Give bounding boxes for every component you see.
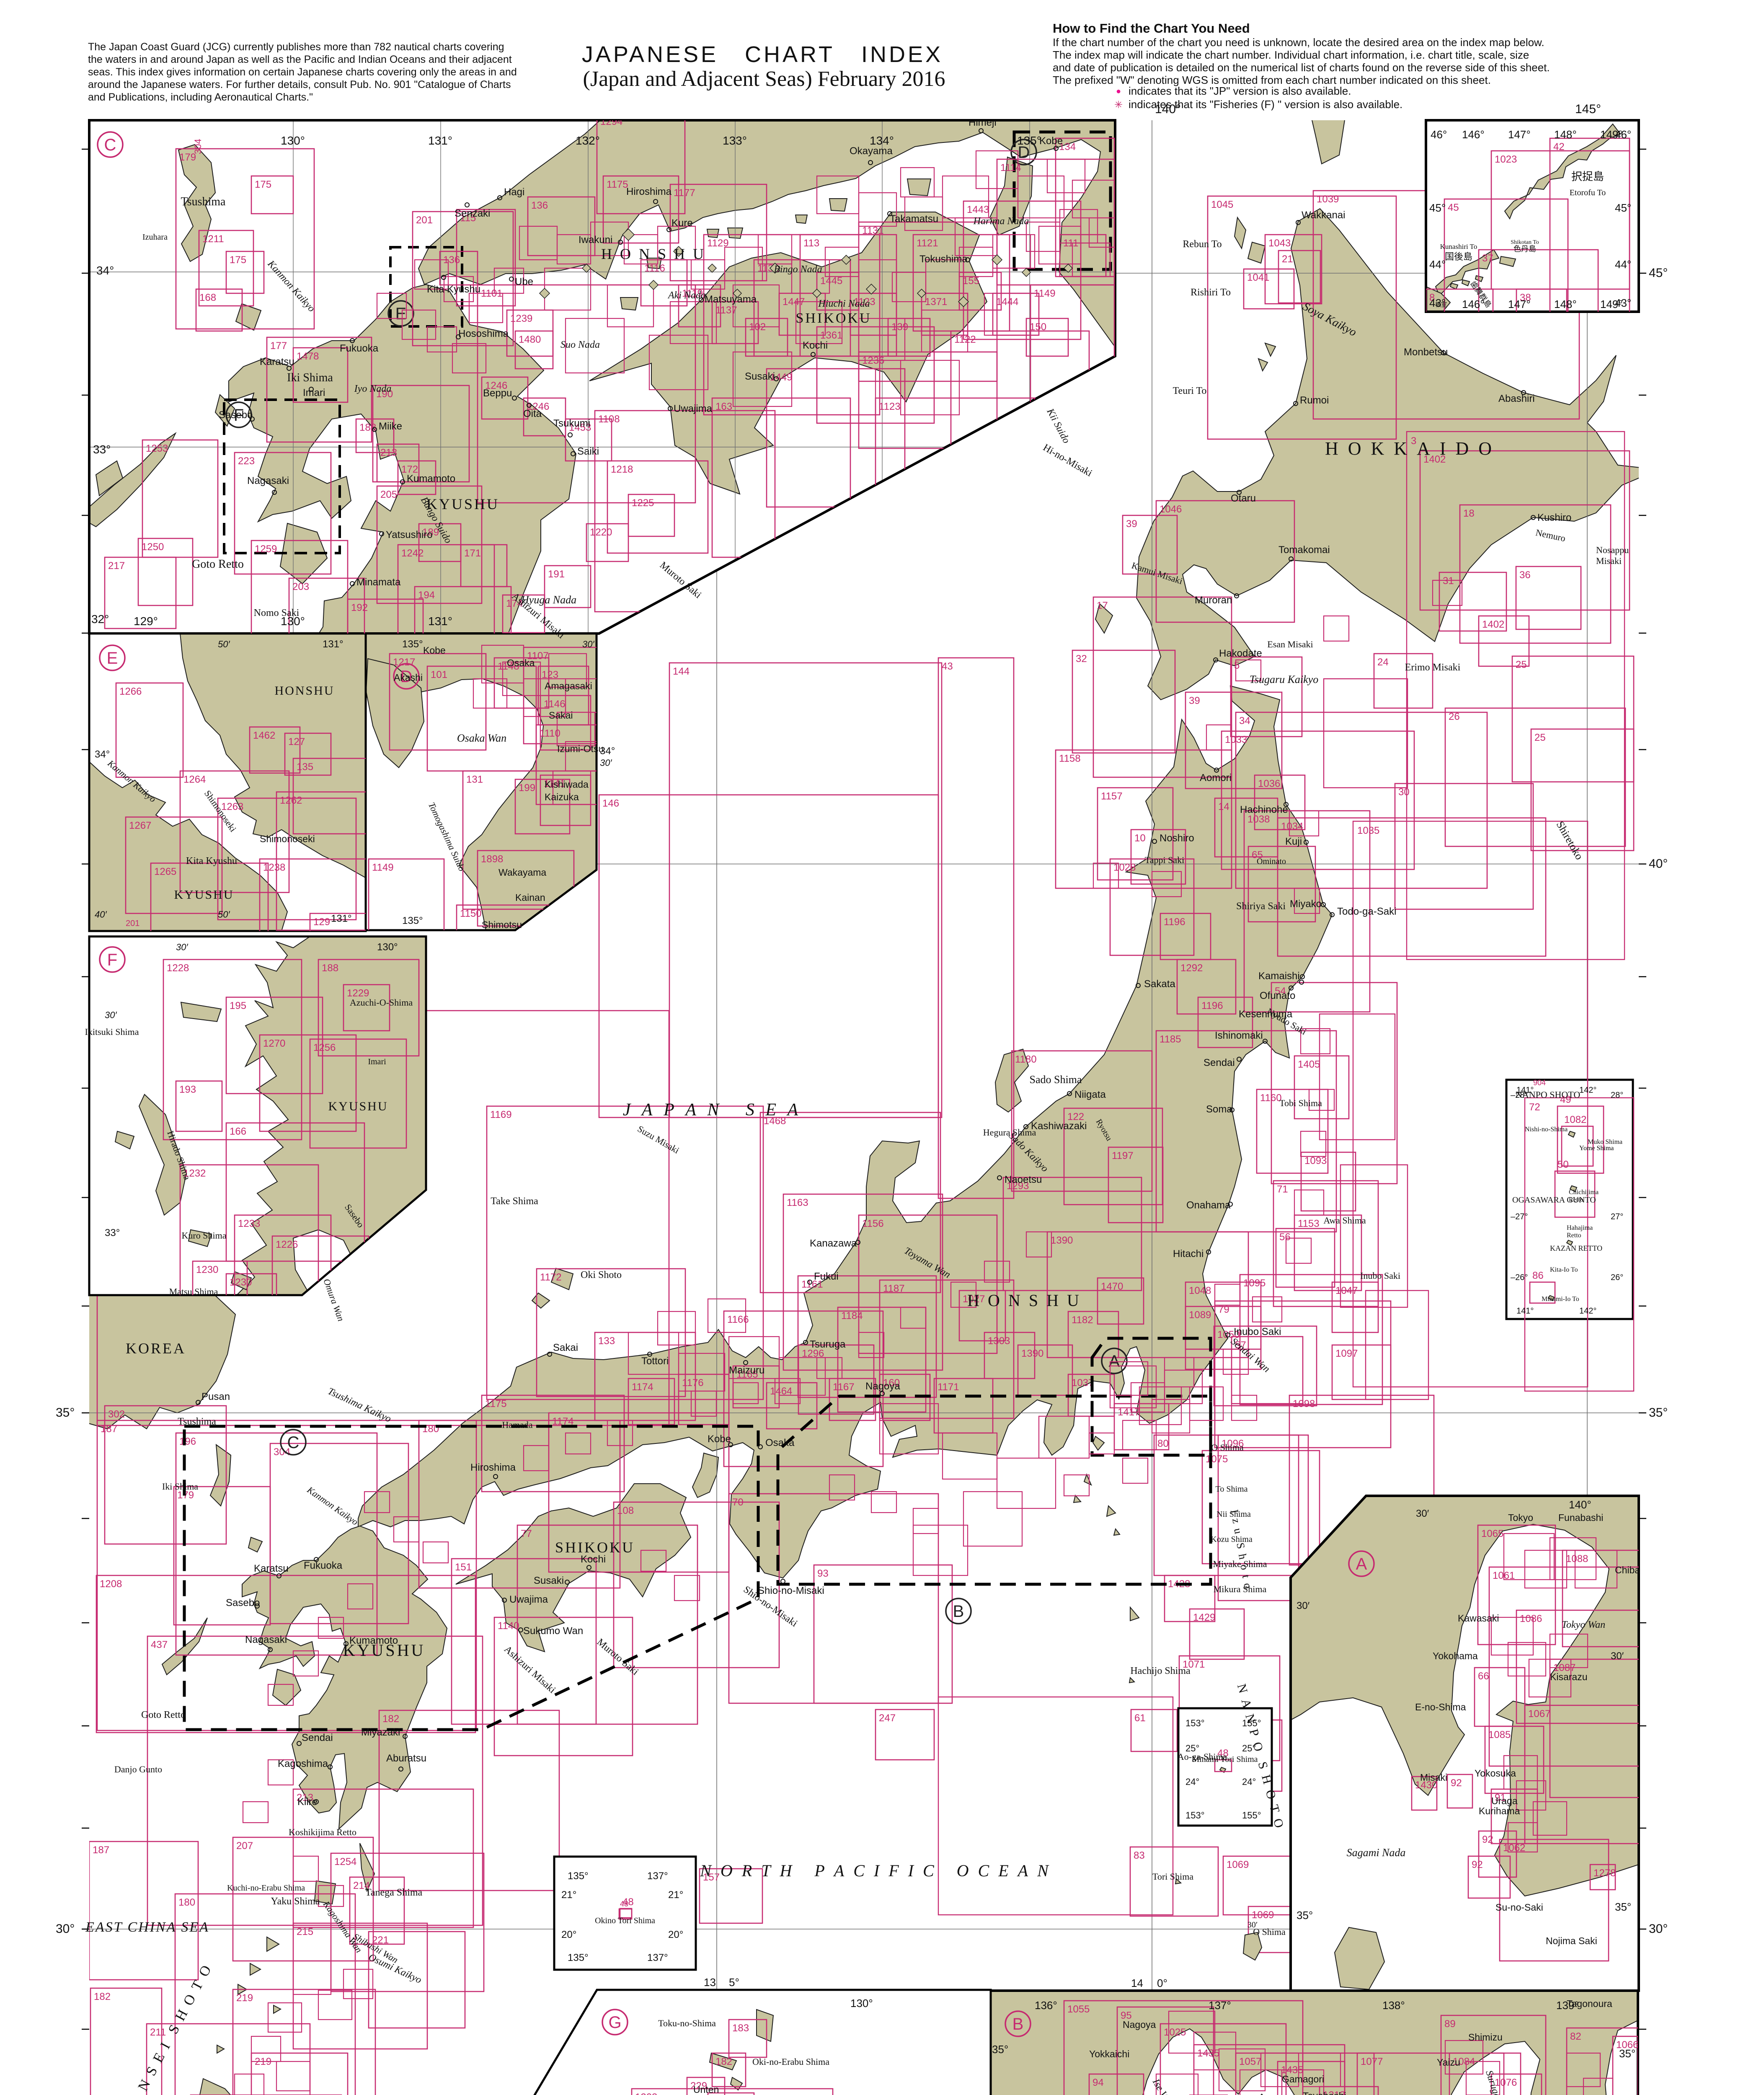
- svg-text:–26°: –26°: [1511, 1273, 1528, 1282]
- svg-text:Sakata: Sakata: [1144, 978, 1175, 990]
- svg-text:1177: 1177: [674, 187, 695, 199]
- svg-text:1158: 1158: [1059, 753, 1081, 764]
- svg-text:Kita Kyushu: Kita Kyushu: [427, 284, 480, 295]
- svg-text:1197: 1197: [1112, 1150, 1134, 1161]
- svg-text:1264: 1264: [183, 774, 206, 785]
- svg-text:JAPANESE CHART INDEX: JAPANESE CHART INDEX: [582, 42, 943, 67]
- svg-text:30°: 30°: [1649, 1922, 1668, 1936]
- svg-text:Ominato: Ominato: [1257, 857, 1286, 866]
- svg-text:Rishiri To: Rishiri To: [1191, 287, 1231, 298]
- svg-text:Hiroshima: Hiroshima: [470, 1462, 516, 1473]
- svg-text:24°: 24°: [1185, 1777, 1199, 1787]
- svg-text:1160: 1160: [1260, 1092, 1282, 1104]
- svg-text:Kumamoto: Kumamoto: [349, 1635, 398, 1646]
- svg-text:KAZAN RETTO: KAZAN RETTO: [1550, 1244, 1602, 1252]
- svg-text:24°: 24°: [1242, 1777, 1256, 1787]
- svg-text:1250: 1250: [142, 541, 164, 553]
- svg-text:34°: 34°: [95, 749, 110, 760]
- svg-text:1239: 1239: [510, 313, 532, 324]
- svg-text:1262: 1262: [280, 795, 302, 806]
- svg-text:66: 66: [1478, 1671, 1489, 1682]
- svg-text:Noshiro: Noshiro: [1160, 833, 1194, 844]
- svg-text:Matsu Shima: Matsu Shima: [169, 1286, 218, 1297]
- svg-text:Yokohama: Yokohama: [1433, 1650, 1478, 1661]
- svg-text:Wakkanai: Wakkanai: [1302, 209, 1345, 221]
- svg-text:20°: 20°: [668, 1929, 683, 1940]
- svg-text:1402: 1402: [1482, 619, 1504, 630]
- svg-text:around the Japanese waters. F: around the Japanese waters. For further …: [88, 79, 511, 91]
- svg-text:1038: 1038: [1247, 814, 1270, 825]
- svg-text:H O N S H U: H O N S H U: [967, 1291, 1081, 1310]
- svg-text:Imari: Imari: [368, 1057, 386, 1066]
- svg-text:1037: 1037: [1072, 1377, 1094, 1389]
- svg-text:129°: 129°: [134, 615, 158, 628]
- svg-text:25°: 25°: [1185, 1743, 1199, 1754]
- svg-text:147°: 147°: [1508, 128, 1531, 141]
- svg-text:Soma: Soma: [1206, 1104, 1232, 1115]
- svg-text:Uwajima: Uwajima: [674, 403, 713, 414]
- svg-text:Hamada: Hamada: [502, 1420, 533, 1430]
- svg-text:199: 199: [519, 782, 535, 794]
- svg-text:131: 131: [466, 774, 483, 785]
- svg-text:Shio-no-Misaki: Shio-no-Misaki: [758, 1585, 824, 1596]
- svg-text:33°: 33°: [105, 1227, 120, 1239]
- svg-text:To Shima: To Shima: [1216, 1485, 1248, 1494]
- svg-text:Ofunato: Ofunato: [1260, 990, 1295, 1001]
- svg-text:Hachijo Shima: Hachijo Shima: [1130, 1666, 1191, 1676]
- svg-text:194: 194: [418, 590, 435, 601]
- svg-text:●: ●: [1116, 87, 1121, 96]
- svg-text:Tori Shima: Tori Shima: [1152, 1871, 1193, 1882]
- svg-text:1123: 1123: [879, 401, 901, 412]
- svg-text:Aki Nada: Aki Nada: [667, 290, 706, 301]
- svg-text:1086: 1086: [1520, 1613, 1542, 1624]
- svg-text:45°: 45°: [1649, 266, 1668, 280]
- svg-text:43°: 43°: [1615, 297, 1631, 309]
- svg-text:Hiuchi Nada: Hiuchi Nada: [818, 298, 870, 309]
- svg-text:Uwajima: Uwajima: [509, 1594, 548, 1605]
- svg-text:134°: 134°: [870, 134, 894, 147]
- svg-text:94: 94: [1092, 2077, 1104, 2088]
- svg-text:Misaki: Misaki: [1420, 1772, 1447, 1783]
- svg-text:Hachinohe: Hachinohe: [1240, 804, 1288, 815]
- svg-text:1218: 1218: [611, 464, 633, 475]
- svg-text:201: 201: [126, 919, 139, 928]
- svg-text:Kobe: Kobe: [708, 1433, 731, 1445]
- svg-text:Yatsushiro: Yatsushiro: [386, 529, 433, 541]
- svg-text:130°: 130°: [281, 615, 305, 628]
- svg-text:166: 166: [230, 1126, 246, 1137]
- svg-text:24: 24: [1377, 657, 1389, 668]
- svg-text:302: 302: [108, 1409, 125, 1420]
- svg-text:Bingo Nada: Bingo Nada: [774, 264, 822, 275]
- svg-text:135°: 135°: [402, 915, 423, 926]
- svg-text:Rebun To: Rebun To: [1183, 239, 1222, 250]
- svg-text:144: 144: [673, 666, 690, 677]
- svg-text:205: 205: [380, 489, 397, 500]
- svg-text:1390: 1390: [1051, 1235, 1073, 1246]
- svg-text:30°: 30°: [56, 1922, 75, 1936]
- svg-text:1149: 1149: [372, 862, 394, 873]
- svg-text:Tsugaru Kaikyo: Tsugaru Kaikyo: [1250, 673, 1318, 685]
- svg-text:182: 182: [715, 2056, 732, 2067]
- svg-text:1039: 1039: [1317, 194, 1339, 205]
- svg-text:150: 150: [1030, 321, 1046, 333]
- svg-text:1390: 1390: [1021, 1348, 1043, 1359]
- svg-text:187: 187: [93, 1844, 109, 1856]
- svg-text:1025: 1025: [1164, 2027, 1186, 2038]
- svg-text:Kobe: Kobe: [1039, 135, 1063, 147]
- svg-text:Tottori: Tottori: [641, 1355, 669, 1367]
- svg-text:1157: 1157: [1101, 791, 1123, 802]
- svg-text:J A P A N S E A: J A P A N S E A: [623, 1100, 801, 1120]
- svg-text:39: 39: [1126, 518, 1137, 530]
- svg-text:Nagoya: Nagoya: [1123, 2019, 1156, 2030]
- svg-text:130°: 130°: [850, 1997, 873, 2010]
- svg-text:1095: 1095: [1243, 1278, 1266, 1289]
- svg-text:Kobe: Kobe: [423, 645, 446, 656]
- svg-text:Pusan: Pusan: [201, 1391, 230, 1402]
- svg-text:1898: 1898: [481, 854, 503, 865]
- svg-text:indicates that its "JP" versio: indicates that its "JP" version is also …: [1129, 85, 1351, 97]
- svg-text:1045: 1045: [1211, 199, 1233, 210]
- svg-text:1089: 1089: [1189, 1309, 1211, 1321]
- svg-text:Tappi Saki: Tappi Saki: [1145, 855, 1184, 865]
- svg-text:1462: 1462: [253, 730, 275, 741]
- svg-text:1085: 1085: [1488, 1729, 1511, 1741]
- svg-text:153°: 153°: [1185, 1810, 1205, 1821]
- svg-text:Goto Retto: Goto Retto: [141, 1710, 186, 1720]
- svg-text:223: 223: [238, 455, 255, 467]
- svg-text:27°: 27°: [1611, 1212, 1623, 1221]
- svg-text:O Shima: O Shima: [1253, 1927, 1286, 1937]
- svg-text:1041: 1041: [1247, 272, 1269, 283]
- svg-text:207: 207: [236, 1840, 253, 1852]
- svg-text:1048: 1048: [1189, 1285, 1211, 1296]
- svg-text:133°: 133°: [723, 134, 747, 147]
- svg-text:C: C: [104, 136, 116, 154]
- svg-text:Awa Shima: Awa Shima: [1323, 1215, 1366, 1226]
- svg-text:131°: 131°: [428, 134, 452, 147]
- svg-text:O Shima: O Shima: [1211, 1442, 1244, 1453]
- svg-text:1444: 1444: [996, 296, 1018, 308]
- svg-text:Retto: Retto: [1569, 1196, 1583, 1203]
- svg-text:145°: 145°: [1575, 102, 1601, 116]
- svg-text:Okayama: Okayama: [850, 145, 893, 157]
- svg-text:1153: 1153: [1298, 1218, 1320, 1229]
- svg-text:188: 188: [322, 962, 338, 974]
- svg-text:171: 171: [464, 548, 481, 559]
- svg-text:Ishinomaki: Ishinomaki: [1215, 1030, 1263, 1041]
- svg-text:Fukui: Fukui: [814, 1271, 839, 1282]
- svg-text:Muroran: Muroran: [1195, 595, 1232, 606]
- svg-text:131°: 131°: [323, 639, 344, 650]
- svg-text:H O N S H U: H O N S H U: [601, 246, 706, 262]
- svg-text:1163: 1163: [787, 1197, 808, 1208]
- svg-text:30′: 30′: [176, 942, 188, 952]
- svg-text:21°: 21°: [561, 1889, 576, 1901]
- svg-text:146°: 146°: [1462, 298, 1485, 310]
- svg-text:5°: 5°: [729, 1976, 739, 1989]
- svg-text:The Japan Coast Guard (JCG) cu: The Japan Coast Guard (JCG) currently pu…: [88, 41, 504, 53]
- svg-text:1175: 1175: [485, 1398, 507, 1410]
- svg-text:Minami-Io To: Minami-Io To: [1542, 1296, 1579, 1303]
- svg-text:1278: 1278: [1594, 1867, 1616, 1879]
- svg-text:Shimotsu: Shimotsu: [482, 919, 522, 930]
- svg-text:36: 36: [1519, 569, 1531, 581]
- svg-text:–27°: –27°: [1511, 1212, 1528, 1221]
- svg-text:50′: 50′: [218, 909, 230, 920]
- svg-text:146: 146: [602, 798, 619, 809]
- svg-text:Ikitsuki Shima: Ikitsuki Shima: [85, 1027, 139, 1037]
- svg-text:437: 437: [151, 1639, 168, 1650]
- svg-text:34°: 34°: [96, 264, 114, 277]
- svg-text:Sasebo: Sasebo: [219, 409, 253, 421]
- svg-text:Funabashi: Funabashi: [1558, 1512, 1603, 1523]
- svg-text:135°: 135°: [568, 1952, 589, 1963]
- svg-text:Iki Shima: Iki Shima: [162, 1481, 198, 1492]
- svg-text:20°: 20°: [561, 1929, 576, 1940]
- svg-text:Kashiwazaki: Kashiwazaki: [1031, 1120, 1087, 1132]
- svg-text:Inubo Saki: Inubo Saki: [1360, 1270, 1400, 1281]
- svg-text:Karatsu: Karatsu: [254, 1563, 289, 1574]
- svg-text:Onahama: Onahama: [1186, 1200, 1231, 1211]
- svg-text:1140: 1140: [498, 1620, 519, 1632]
- svg-text:1175: 1175: [607, 179, 628, 190]
- svg-text:1253: 1253: [146, 443, 168, 454]
- svg-text:1097: 1097: [1335, 1348, 1358, 1359]
- svg-text:Etorofu To: Etorofu To: [1570, 188, 1606, 197]
- svg-text:Osaka Wan: Osaka Wan: [457, 732, 506, 744]
- svg-text:219: 219: [236, 1992, 253, 2004]
- svg-text:904: 904: [1533, 1079, 1546, 1087]
- svg-text:148°: 148°: [1554, 298, 1577, 310]
- svg-text:Oki-no-Erabu Shima: Oki-no-Erabu Shima: [752, 2056, 829, 2067]
- svg-text:1023: 1023: [1495, 154, 1517, 165]
- svg-text:247: 247: [879, 1712, 896, 1724]
- svg-text:Suo Nada: Suo Nada: [560, 339, 600, 350]
- svg-text:KYUSHU: KYUSHU: [426, 496, 499, 512]
- svg-text:Kagoshima: Kagoshima: [278, 1758, 328, 1769]
- svg-text:Tokyo: Tokyo: [1508, 1512, 1533, 1523]
- svg-text:Iwakuni: Iwakuni: [579, 234, 612, 246]
- svg-text:Retto: Retto: [1567, 1232, 1581, 1239]
- svg-text:Kishiwada: Kishiwada: [545, 779, 589, 790]
- svg-text:Iki Shima: Iki Shima: [287, 371, 333, 384]
- svg-text:45°: 45°: [1615, 202, 1631, 214]
- svg-text:H O K K A I D O: H O K K A I D O: [1325, 438, 1494, 459]
- svg-text:Osaka: Osaka: [765, 1437, 795, 1448]
- svg-text:30′: 30′: [1297, 1600, 1310, 1611]
- svg-text:Kumamoto: Kumamoto: [407, 473, 455, 484]
- svg-text:Sendai: Sendai: [302, 1732, 333, 1743]
- svg-text:191: 191: [548, 569, 565, 580]
- svg-text:77: 77: [521, 1528, 532, 1539]
- svg-text:1047: 1047: [1335, 1285, 1358, 1296]
- svg-text:1220: 1220: [590, 527, 612, 538]
- svg-text:1156: 1156: [862, 1218, 884, 1229]
- svg-text:Nagasaki: Nagasaki: [245, 1634, 287, 1645]
- svg-text:43: 43: [942, 661, 953, 672]
- svg-text:1150: 1150: [460, 908, 482, 919]
- svg-text:10: 10: [1134, 833, 1146, 844]
- svg-text:127: 127: [288, 736, 305, 747]
- svg-text:Fukuoka: Fukuoka: [340, 343, 379, 354]
- svg-text:Hiroshima: Hiroshima: [626, 186, 672, 197]
- svg-text:Miyake Shima: Miyake Shima: [1213, 1559, 1267, 1569]
- svg-text:Matsuyama: Matsuyama: [705, 294, 757, 305]
- svg-text:37: 37: [1482, 253, 1493, 264]
- svg-text:Tanega Shima: Tanega Shima: [365, 1887, 423, 1898]
- svg-text:1267: 1267: [129, 820, 151, 831]
- svg-text:Saiki: Saiki: [577, 446, 599, 457]
- svg-text:187: 187: [101, 1423, 117, 1435]
- svg-text:25°: 25°: [1242, 1743, 1256, 1754]
- svg-text:138°: 138°: [1382, 1999, 1405, 2012]
- svg-text:Susaki: Susaki: [534, 1575, 564, 1586]
- svg-text:Chiba: Chiba: [1615, 1565, 1640, 1575]
- svg-text:Susaki: Susaki: [745, 371, 775, 382]
- svg-text:Sukumo Wan: Sukumo Wan: [523, 1625, 583, 1637]
- svg-text:Okino Tori Shima: Okino Tori Shima: [595, 1916, 655, 1925]
- svg-text:Ube: Ube: [515, 276, 533, 287]
- svg-text:1088: 1088: [1566, 1553, 1588, 1565]
- svg-text:139: 139: [891, 321, 908, 333]
- svg-text:1196: 1196: [1201, 1000, 1223, 1011]
- svg-text:1470: 1470: [1101, 1281, 1123, 1292]
- svg-text:Yokosuka: Yokosuka: [1475, 1768, 1516, 1779]
- svg-text:146°: 146°: [1462, 128, 1485, 141]
- svg-text:Inubo Saki: Inubo Saki: [1234, 1326, 1281, 1337]
- svg-text:Wakayama: Wakayama: [498, 867, 546, 878]
- svg-text:Tsukumi: Tsukumi: [553, 418, 590, 429]
- svg-text:1230: 1230: [196, 1264, 218, 1275]
- svg-text:40′: 40′: [95, 909, 107, 920]
- svg-text:39: 39: [1189, 695, 1200, 706]
- svg-text:Erimo Misaki: Erimo Misaki: [1405, 662, 1461, 673]
- svg-text:217: 217: [108, 560, 125, 572]
- svg-text:色丹島: 色丹島: [1513, 245, 1536, 253]
- svg-text:1174: 1174: [632, 1381, 653, 1393]
- svg-text:14: 14: [1131, 1977, 1143, 1989]
- svg-text:148°: 148°: [1554, 128, 1577, 141]
- svg-text:140°: 140°: [1569, 1498, 1591, 1511]
- svg-text:the waters in and around Japan: the waters in and around Japan as well a…: [88, 54, 512, 65]
- svg-text:180: 180: [178, 1897, 195, 1908]
- svg-text:92: 92: [1472, 1859, 1483, 1870]
- svg-text:30′: 30′: [1611, 1650, 1624, 1662]
- svg-text:108: 108: [617, 1505, 634, 1516]
- svg-text:1035: 1035: [1357, 825, 1379, 836]
- svg-text:137°: 137°: [1209, 1999, 1231, 2012]
- svg-text:Kozu Shima: Kozu Shima: [1211, 1535, 1253, 1544]
- svg-text:201: 201: [416, 215, 433, 226]
- svg-text:18: 18: [1463, 508, 1475, 519]
- svg-text:215: 215: [297, 1926, 313, 1937]
- svg-text:Monbetsu: Monbetsu: [1404, 347, 1448, 358]
- svg-text:175: 175: [255, 179, 271, 190]
- svg-text:Shimizu: Shimizu: [1468, 2032, 1503, 2043]
- svg-text:indicates that its "Fisheries: indicates that its "Fisheries (F) " vers…: [1129, 98, 1402, 111]
- svg-text:Kushiro: Kushiro: [1537, 512, 1571, 523]
- svg-text:KYUSHU: KYUSHU: [328, 1099, 388, 1113]
- svg-text:1254: 1254: [334, 1856, 356, 1867]
- svg-text:Tsushima: Tsushima: [181, 195, 226, 208]
- svg-text:83: 83: [1134, 1850, 1145, 1861]
- svg-text:50′: 50′: [218, 639, 230, 649]
- svg-text:141°: 141°: [1516, 1086, 1534, 1095]
- svg-text:Kita-Io To: Kita-Io To: [1550, 1266, 1578, 1273]
- svg-text:45: 45: [1448, 202, 1459, 213]
- svg-text:14: 14: [1218, 801, 1229, 812]
- svg-text:35°: 35°: [1297, 1909, 1313, 1922]
- svg-text:192: 192: [351, 602, 368, 613]
- svg-text:Shikotan To: Shikotan To: [1511, 239, 1539, 246]
- svg-text:Kesennuma: Kesennuma: [1239, 1009, 1293, 1020]
- svg-text:137°: 137°: [647, 1952, 668, 1963]
- svg-text:Unten: Unten: [693, 2084, 719, 2095]
- svg-text:1075: 1075: [1206, 1454, 1228, 1465]
- svg-text:How to Find the Chart You Need: How to Find the Chart You Need: [1053, 21, 1250, 36]
- svg-text:86: 86: [1532, 1270, 1544, 1281]
- svg-text:Aomori: Aomori: [1200, 772, 1232, 784]
- svg-text:1211: 1211: [202, 233, 224, 245]
- svg-text:21: 21: [1282, 253, 1293, 265]
- svg-text:Azuchi-O-Shima: Azuchi-O-Shima: [350, 997, 413, 1008]
- svg-text:Goto Retto: Goto Retto: [192, 558, 244, 571]
- svg-text:Gamagori: Gamagori: [1282, 2074, 1324, 2085]
- svg-text:1057: 1057: [1239, 2056, 1261, 2067]
- svg-text:1172: 1172: [540, 1272, 562, 1283]
- svg-text:HONSHU: HONSHU: [274, 684, 334, 698]
- svg-text:101: 101: [431, 669, 447, 680]
- svg-text:31: 31: [1443, 575, 1454, 587]
- svg-text:Mikura Shima: Mikura Shima: [1214, 1584, 1267, 1594]
- svg-text:1256: 1256: [313, 1042, 336, 1053]
- svg-text:Nojima Saki: Nojima Saki: [1546, 1935, 1597, 1946]
- svg-text:1176: 1176: [682, 1377, 704, 1389]
- svg-text:Izuhara: Izuhara: [142, 233, 168, 242]
- svg-text:151: 151: [455, 1562, 472, 1573]
- svg-text:Minami Tori Shima: Minami Tori Shima: [1192, 1755, 1258, 1764]
- svg-text:1043: 1043: [1268, 238, 1291, 249]
- svg-text:SHIKOKU: SHIKOKU: [555, 1539, 635, 1556]
- svg-text:1034: 1034: [1281, 821, 1303, 832]
- svg-text:Nagasaki: Nagasaki: [247, 475, 289, 486]
- svg-text:Sasebo: Sasebo: [226, 1597, 260, 1609]
- svg-text:1184: 1184: [841, 1310, 863, 1322]
- svg-text:E: E: [107, 649, 118, 667]
- svg-text:Sado Shima: Sado Shima: [1030, 1073, 1082, 1086]
- svg-text:The index map will indicate th: The index map will indicate the chart nu…: [1053, 49, 1529, 61]
- svg-text:136°: 136°: [1035, 1999, 1057, 2012]
- svg-text:93: 93: [817, 1568, 829, 1579]
- svg-text:61: 61: [1134, 1712, 1146, 1724]
- svg-text:40°: 40°: [1649, 857, 1668, 871]
- svg-text:203: 203: [292, 581, 309, 592]
- svg-text:45°: 45°: [1429, 202, 1446, 214]
- svg-text:Take Shima: Take Shima: [491, 1196, 538, 1207]
- svg-text:Kure: Kure: [672, 217, 693, 229]
- svg-text:1137: 1137: [715, 305, 737, 316]
- svg-text:Akashi: Akashi: [394, 672, 423, 683]
- svg-text:43°: 43°: [1429, 297, 1446, 309]
- svg-text:Uraga: Uraga: [1491, 1795, 1518, 1806]
- svg-text:50: 50: [1557, 1159, 1569, 1170]
- svg-text:1226: 1226: [276, 1239, 298, 1250]
- svg-text:21°: 21°: [668, 1889, 683, 1901]
- svg-text:1208: 1208: [100, 1578, 122, 1590]
